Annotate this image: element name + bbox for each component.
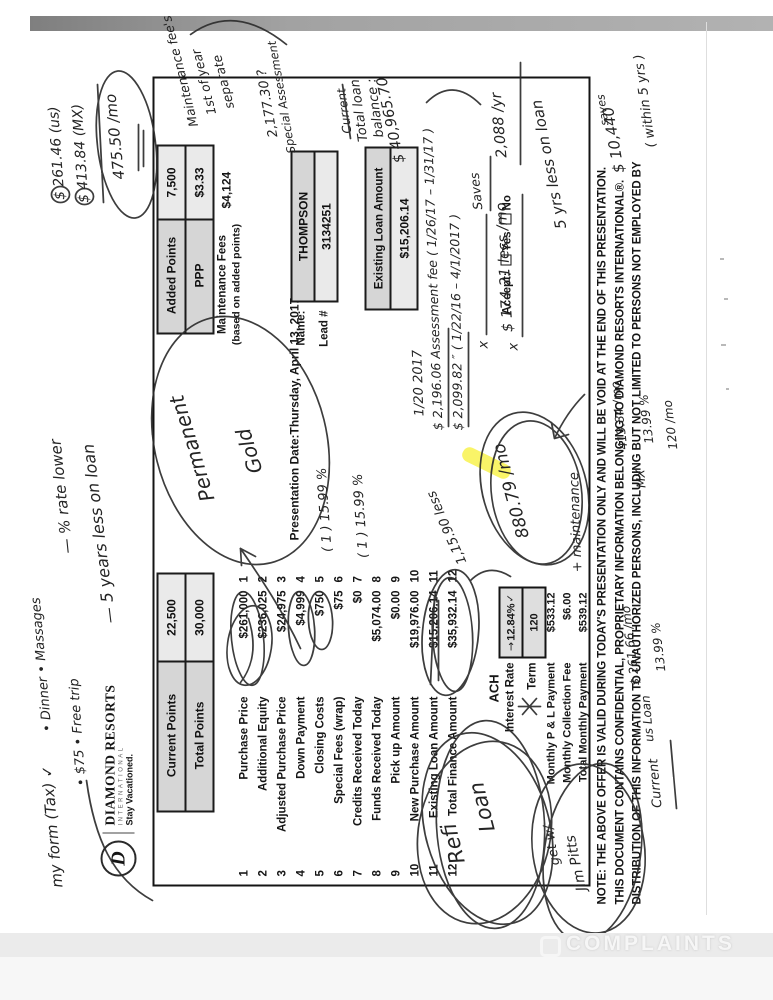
table-row: 6Special Fees (wrap)$756 bbox=[333, 560, 352, 876]
maintenance-fees-note: (based on added points) bbox=[230, 214, 242, 354]
table-row: 8Funds Received Today$5,074.008 bbox=[371, 560, 390, 876]
note-plus-maintenance: + maintenance bbox=[567, 471, 585, 572]
note-5-years-less: — 5 years less on loan bbox=[78, 442, 119, 624]
term-value: 120 bbox=[528, 613, 540, 631]
note-my-form-tax: my form (Tax) ✓ bbox=[37, 764, 66, 888]
added-points-label: Added Points bbox=[156, 216, 186, 334]
watermark-text: COMPLAINTS bbox=[566, 932, 735, 956]
logo-brand: DIAMOND RESORTS bbox=[102, 684, 118, 825]
note-x-mark-1: x bbox=[476, 340, 491, 348]
maintenance-fees-label: Maintenance Fees bbox=[216, 214, 228, 354]
table-row: 5Closing Costs$7505 bbox=[314, 560, 333, 876]
note-us-loan-rate: 13.99 % bbox=[648, 621, 668, 672]
table-row: 9Pick up Amount$0.009 bbox=[390, 560, 409, 876]
table-row: 10New Purchase Amount$19,976.0010 bbox=[409, 560, 428, 876]
note-perks-75: • $75 • Free trip bbox=[66, 677, 88, 786]
note-perks-dinner: • Dinner • Massages bbox=[28, 596, 55, 732]
interest-rate-label: Interest Rate bbox=[504, 662, 516, 802]
presentation-date-label: Presentation Date: bbox=[287, 434, 301, 540]
interest-rate-cell: → 12.84% ✓ bbox=[500, 588, 523, 656]
table-row: 1Purchase Price$261,0001 bbox=[238, 560, 257, 876]
scanned-document-page: D DIAMOND RESORTS INTERNATIONAL Stay Vac… bbox=[0, 0, 773, 1000]
note-rate-lower: — % rate lower bbox=[46, 438, 76, 554]
lead-number-value: 3134251 bbox=[313, 150, 338, 302]
underline-current bbox=[670, 740, 676, 808]
complaints-logo-icon bbox=[540, 936, 561, 957]
added-points-value: 7,500 bbox=[156, 144, 186, 220]
fine-print-line: THIS DOCUMENT CONTAINS CONFIDENTIAL, PRO… bbox=[614, 179, 626, 904]
table-row: 7Credits Received Today$07 bbox=[352, 560, 371, 876]
hand-check: ✓ bbox=[505, 594, 516, 602]
note-mx-monthly: $ 413.84 (MX) bbox=[69, 103, 92, 203]
watermark-subband bbox=[0, 957, 773, 1000]
note-current-word: Current bbox=[646, 758, 665, 808]
table-row: 4Down Payment$4,9994 bbox=[295, 560, 314, 876]
ach-label: ACH bbox=[486, 674, 501, 702]
rotated-worksheet: D DIAMOND RESORTS INTERNATIONAL Stay Vac… bbox=[0, 0, 773, 1000]
collection-fee-label: Monthly Collection Fee bbox=[561, 662, 573, 842]
table-row: 2Additional Equity$236,0252 bbox=[257, 560, 276, 876]
note-assess-date: 1/20 2017 bbox=[410, 349, 427, 416]
name-value: THOMPSON bbox=[290, 150, 315, 302]
monthly-pl-value: $533.12 bbox=[545, 592, 557, 658]
interest-rate-value: 12.84% bbox=[505, 603, 517, 640]
current-points-value: 22,500 bbox=[156, 572, 186, 662]
ppp-label: PPP bbox=[184, 216, 214, 334]
note-saves-amount: $ 10,440 bbox=[598, 105, 627, 174]
ppp-value: $3.33 bbox=[184, 144, 214, 220]
note-us-monthly: $ 261.46 (us) bbox=[45, 105, 68, 200]
scribble-475 bbox=[138, 124, 143, 170]
monthly-pl-label: Monthly P & L Payment bbox=[545, 662, 557, 842]
note-assess-fee-2: $ 2,099.82 ″ ( 1/22/16 – 4/1/2017 ) bbox=[446, 213, 465, 430]
logo-tagline: Stay Vacationed. bbox=[124, 684, 134, 825]
total-points-value: 30,000 bbox=[184, 572, 214, 662]
diamond-resorts-logo: D DIAMOND RESORTS INTERNATIONAL Stay Vac… bbox=[100, 684, 136, 876]
note-mx-amt: 413.84 /mo bbox=[608, 380, 630, 450]
term-cell: 120 bbox=[523, 588, 544, 656]
note-saves-small: Saves bbox=[466, 171, 485, 210]
logo-d-icon: D bbox=[100, 840, 136, 876]
maintenance-fees-value: $4,124 bbox=[219, 171, 233, 208]
note-x-mark-2: x bbox=[506, 342, 521, 350]
total-monthly-label: Total Monthly Payment bbox=[577, 662, 589, 842]
name-label: Name: bbox=[295, 310, 307, 388]
fine-print-line: DISTRIBUTION OF THIS INFORMATION TO UNAU… bbox=[631, 161, 643, 904]
collection-fee-value: $6.00 bbox=[561, 592, 573, 658]
total-monthly-value: $539.12 bbox=[577, 592, 589, 658]
hand-arrow: → bbox=[504, 641, 517, 650]
table-row: 3Adjusted Purchase Price$24,9753 bbox=[276, 560, 295, 876]
current-points-label: Current Points bbox=[156, 658, 186, 812]
note-total-monthly: 475.50 /mo bbox=[101, 92, 128, 180]
total-points-label: Total Points bbox=[184, 658, 214, 812]
note-mx-term: 120 /mo bbox=[660, 399, 680, 450]
note-within-5yrs: ( within 5 yrs ) bbox=[631, 53, 659, 148]
logo-international: INTERNATIONAL bbox=[118, 684, 124, 825]
fine-print-line: NOTE: THE ABOVE OFFER IS VALID DURING TO… bbox=[596, 167, 608, 905]
note-mx-word: MX bbox=[633, 468, 648, 488]
rate-term-box: → 12.84% ✓ 120 bbox=[498, 586, 546, 658]
lead-number-label: Lead # bbox=[318, 310, 330, 388]
existing-loan-box-value: $15,206.14 bbox=[389, 146, 418, 310]
term-label: Term bbox=[526, 662, 538, 802]
